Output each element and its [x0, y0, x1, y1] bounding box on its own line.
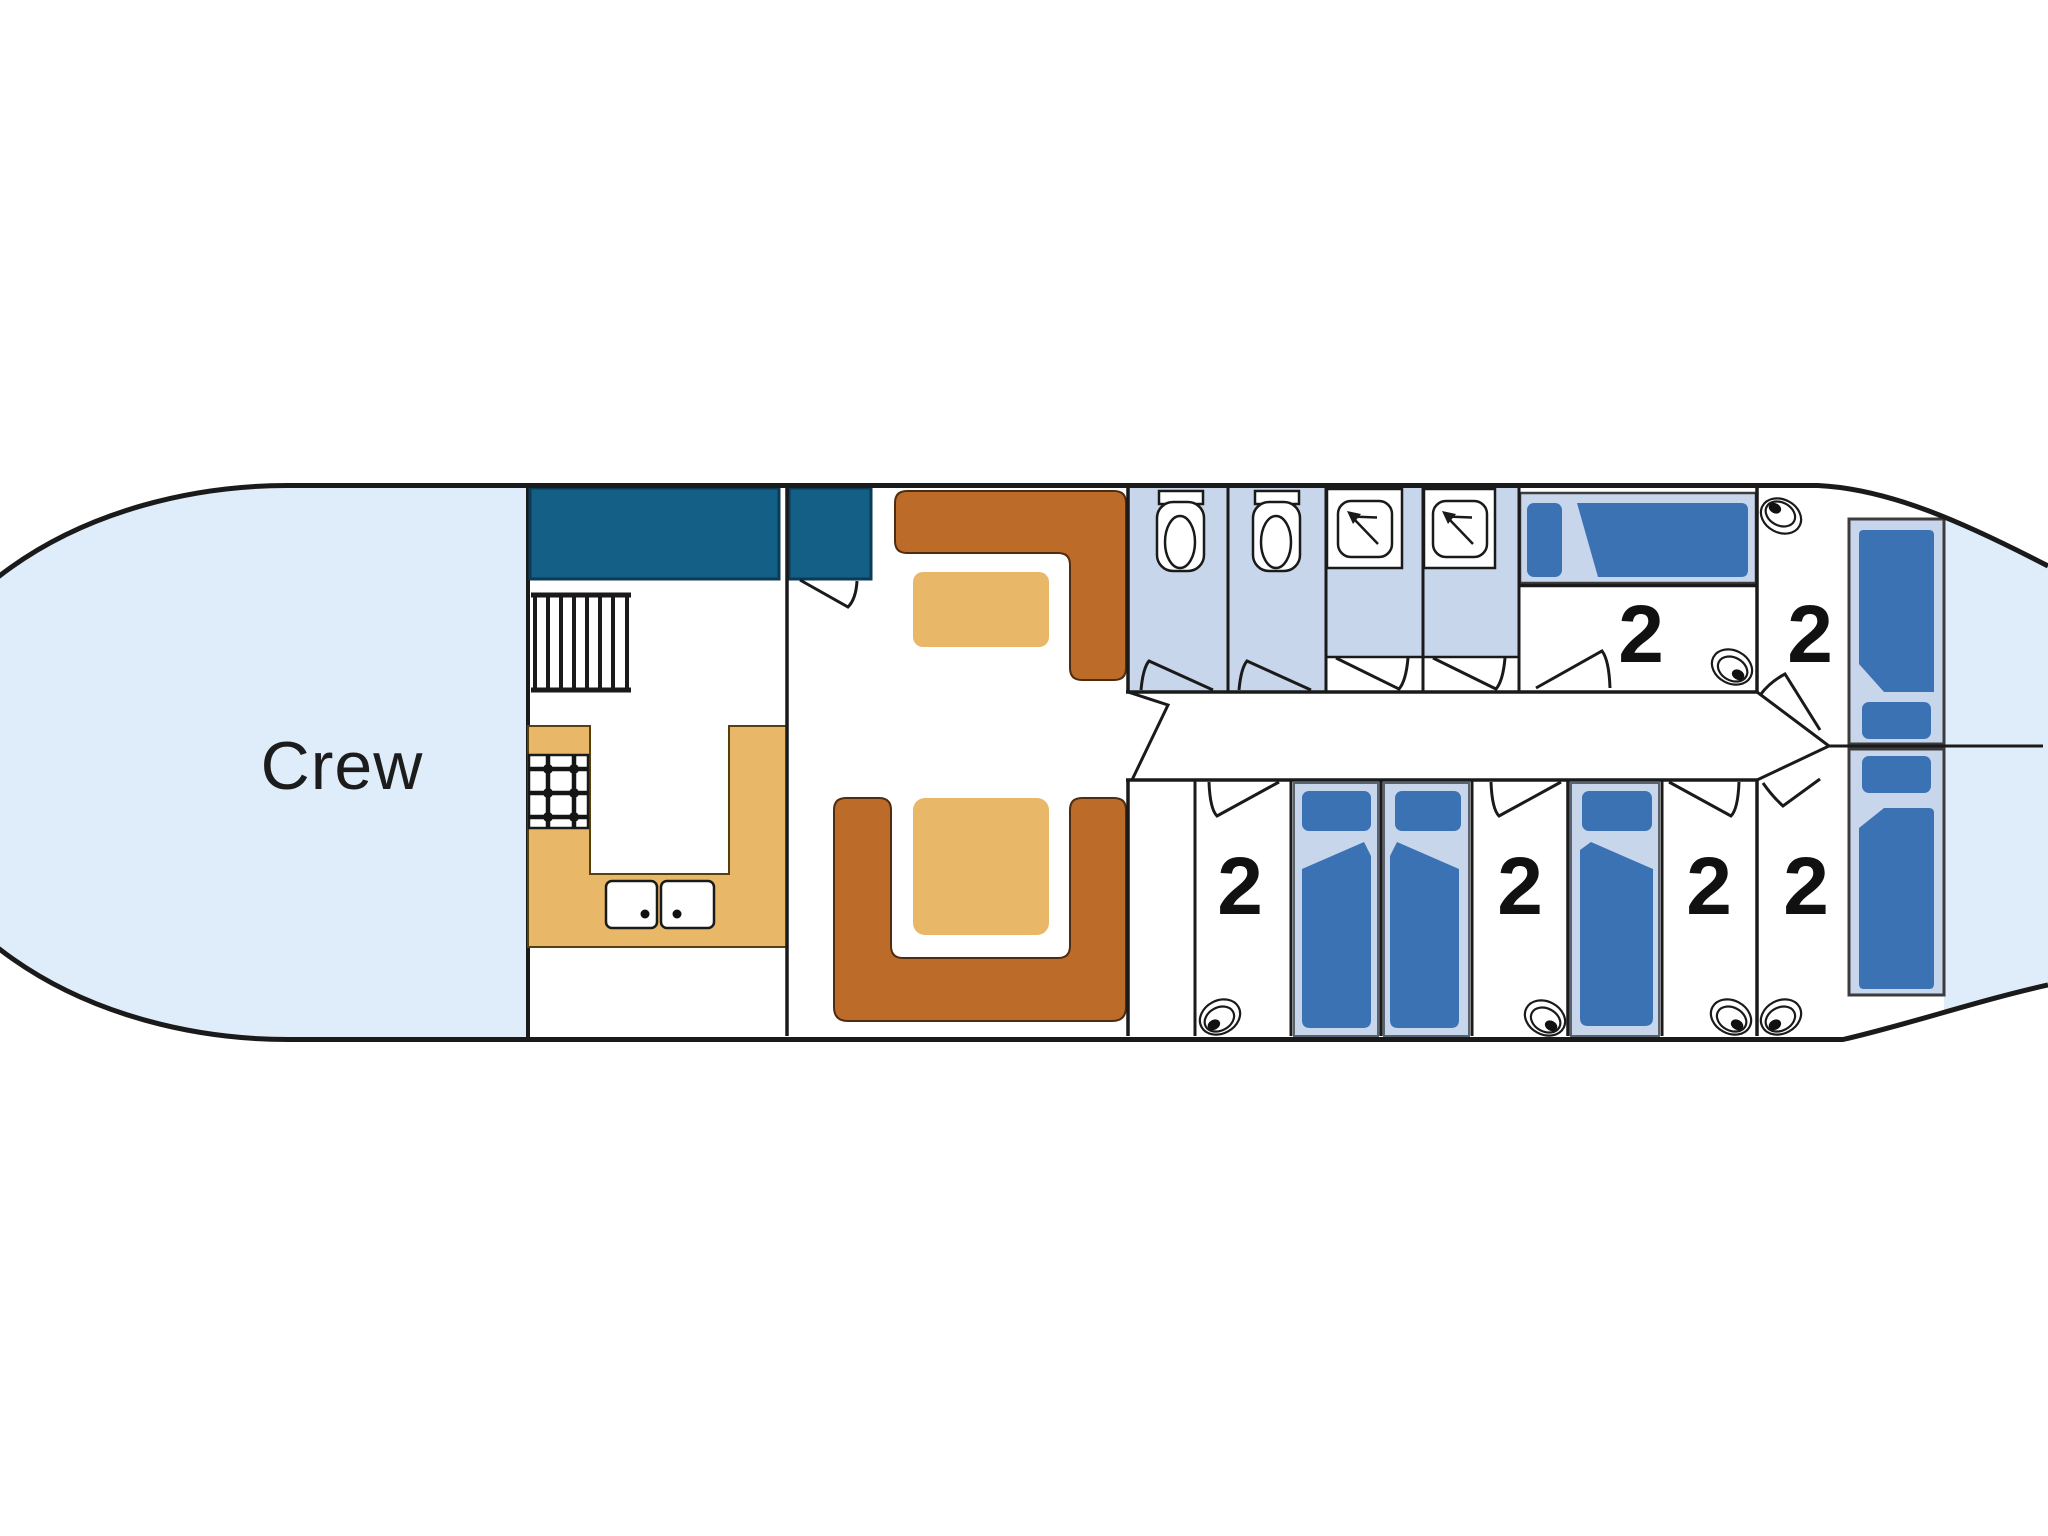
svg-text:2: 2 [1497, 841, 1543, 932]
svg-text:2: 2 [1783, 841, 1829, 932]
svg-text:2: 2 [1618, 589, 1664, 680]
svg-text:2: 2 [1217, 841, 1263, 932]
svg-text:2: 2 [1787, 589, 1833, 680]
svg-text:Crew: Crew [261, 728, 424, 804]
svg-text:2: 2 [1686, 841, 1732, 932]
